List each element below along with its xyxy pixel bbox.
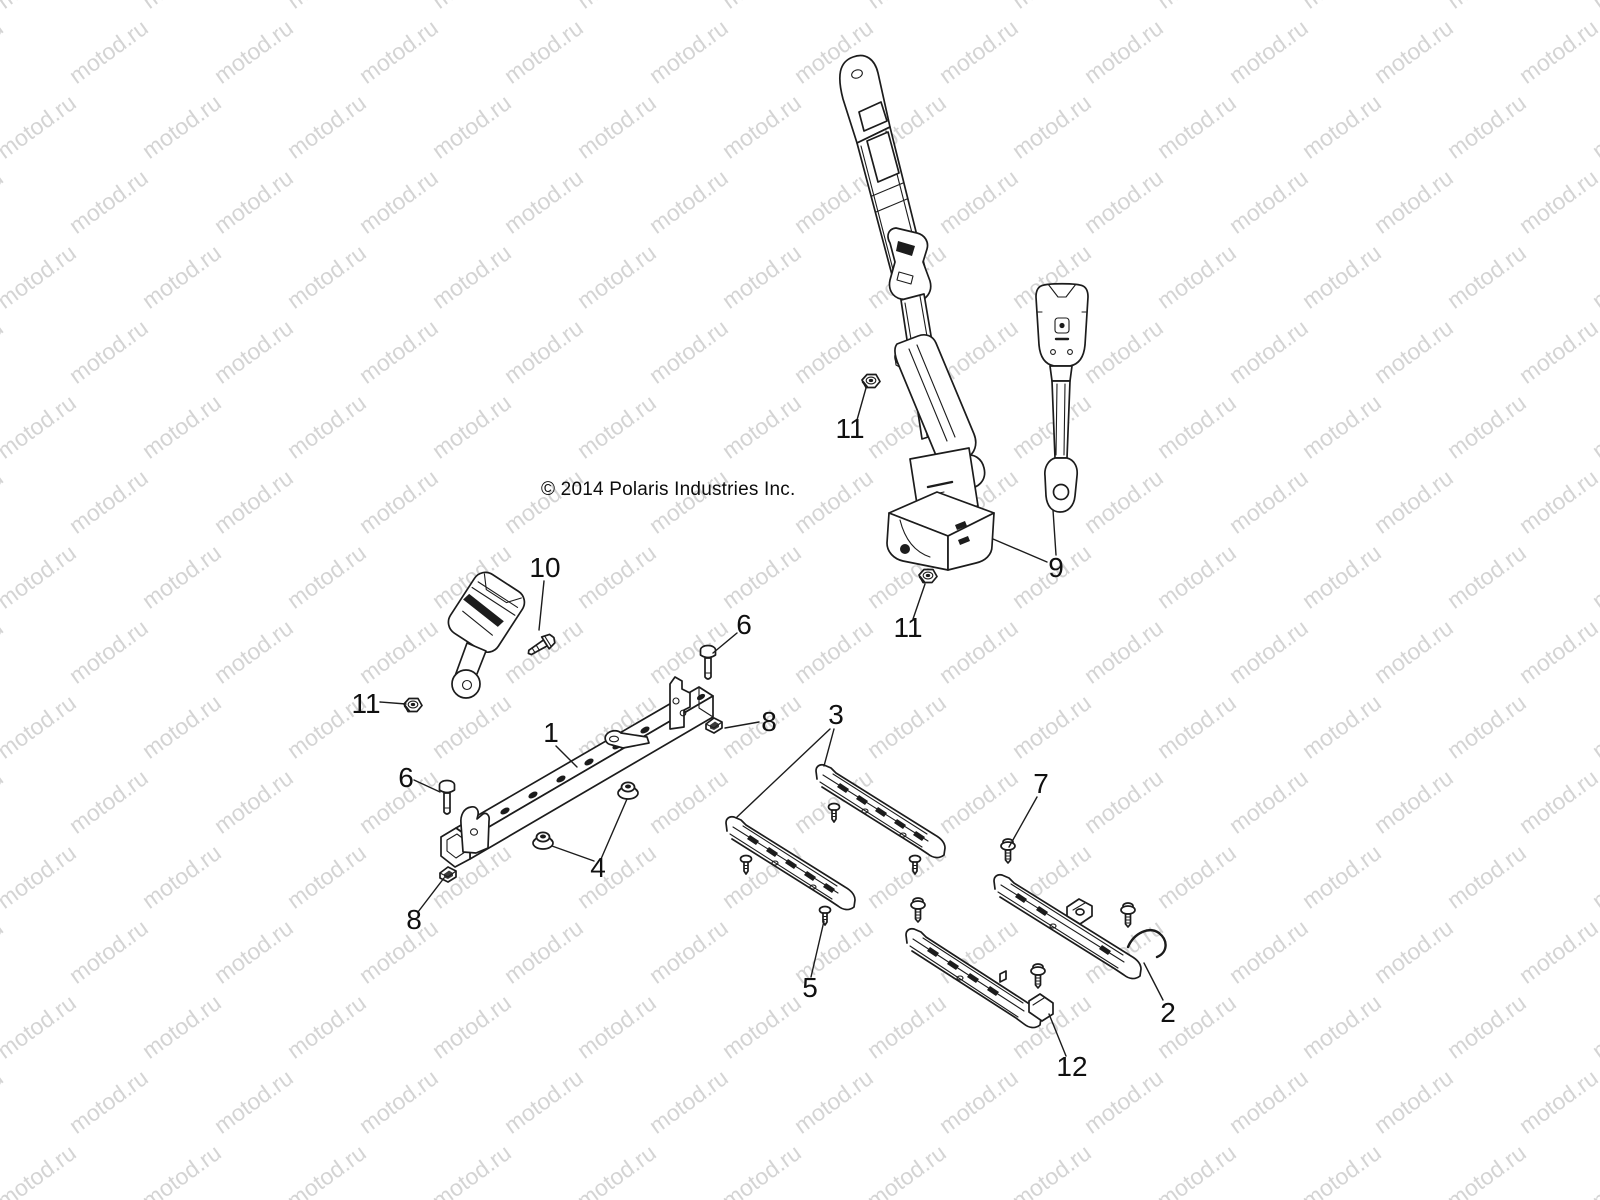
screw-hex-bottom [1031,964,1045,988]
callout-label-11: 11 [893,612,922,643]
leader-line-8 [725,722,759,728]
leader-line-3 [824,729,834,766]
nut-11-top [862,375,880,388]
callout-label-1: 1 [543,717,559,748]
bolt-6-left [440,781,455,815]
leader-line-12 [1049,1014,1066,1056]
leader-line-6 [414,780,440,792]
screw-hex-right [1121,903,1135,927]
seat-belt-retractor-assembly [840,55,994,570]
screw-5 [820,907,831,926]
leader-line-4 [601,799,627,859]
leader-line-9 [993,539,1047,562]
seat-belt-buckle [443,567,529,698]
slide-rail-12 [906,929,1053,1028]
callout-label-9: 9 [1048,552,1064,583]
callout-label-8: 8 [406,904,422,935]
screw-rail-right [910,856,921,875]
callout-label-2: 2 [1160,997,1176,1028]
screw-7 [1001,839,1015,863]
callout-label-6: 6 [398,762,414,793]
callout-label-7: 7 [1033,768,1049,799]
leader-line-9 [1053,510,1056,555]
callout-label-11: 11 [351,688,380,719]
parts-diagram: 123456678891011111112 [0,0,1600,1200]
flange-nut-4-right [618,782,638,799]
copyright-text: © 2014 Polaris Industries Inc. [541,479,795,501]
screw-hex-mid [911,898,925,922]
nut-11-left [404,699,422,712]
buckle-receiver [1036,284,1088,512]
seat-mount-bar [441,677,713,867]
leader-line-10 [539,581,544,630]
bolt-6-right [701,646,716,680]
screw-rail-left [741,856,752,875]
leader-line-8 [418,878,444,912]
leader-line-2 [1144,963,1163,1000]
callout-label-12: 12 [1056,1051,1087,1082]
screw-rail-top [829,804,840,823]
leader-line-7 [1009,797,1037,847]
leader-line-4 [552,846,594,861]
flange-nut-4-left [533,832,553,849]
callout-label-3: 3 [828,699,844,730]
callout-label-5: 5 [802,972,818,1003]
parts-diagram-page: motod.rumotod.rumotod.rumotod.rumotod.ru… [0,0,1600,1200]
nut-11-mid [919,570,937,583]
leader-line-11 [380,702,406,704]
slide-rail-with-lever [994,875,1166,979]
leader-line-6 [713,633,737,653]
callout-label-8: 8 [761,706,777,737]
bolt-10 [525,632,558,660]
leader-line-5 [811,921,824,977]
callout-label-10: 10 [529,552,560,583]
callout-label-6: 6 [736,609,752,640]
callout-label-11: 11 [835,413,864,444]
callout-label-4: 4 [590,852,606,883]
